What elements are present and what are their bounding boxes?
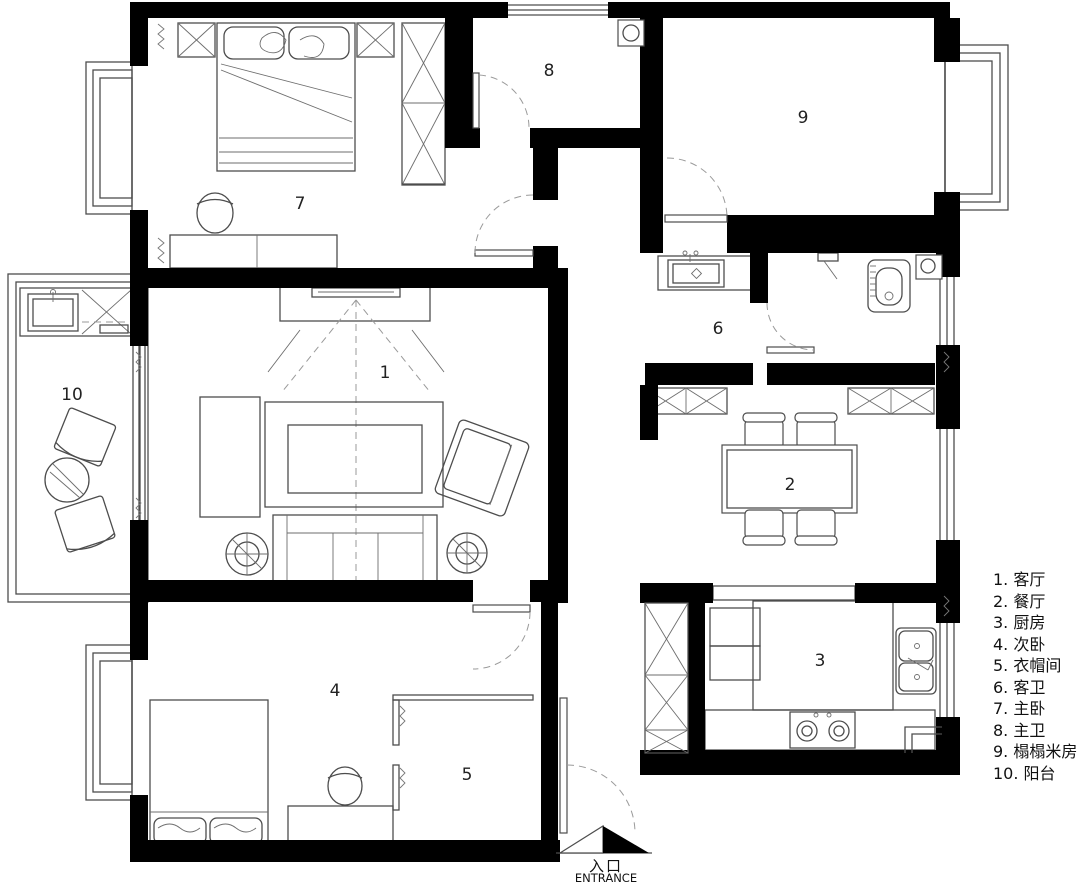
guest-bathroom-furniture <box>658 251 910 312</box>
legend-item: 9. 榻榻米房 <box>993 741 1077 763</box>
balcony-furniture <box>20 288 133 555</box>
bay-window-tatami-room <box>945 45 1008 210</box>
master-bedroom-furniture <box>170 23 445 268</box>
room-legend: 1. 客厅 2. 餐厅 3. 厨房 4. 次卧 5. 衣帽间 6. 客卫 7. … <box>993 569 1077 784</box>
room-number-master-bathroom: 8 <box>544 61 555 81</box>
room-number-kitchen: 3 <box>815 651 826 671</box>
water-heater <box>916 255 942 279</box>
legend-item: 6. 客卫 <box>993 677 1077 699</box>
floor-plan-drawing: 1 2 3 4 5 6 7 8 9 10 <box>0 0 1080 885</box>
entrance-label-en: ENTRANCE <box>556 871 656 885</box>
shoe-cabinet <box>645 603 688 753</box>
legend-item: 3. 厨房 <box>993 612 1077 634</box>
room-number-dining-room: 2 <box>785 475 796 495</box>
room-number-balcony: 10 <box>61 385 83 405</box>
room-number-second-bedroom: 4 <box>330 681 341 701</box>
living-room-furniture <box>200 283 530 586</box>
floor-plan-page: 1 2 3 4 5 6 7 8 9 10 1. 客厅 2. 餐厅 3. 厨房 4… <box>0 0 1080 885</box>
legend-item: 5. 衣帽间 <box>993 655 1077 677</box>
second-bedroom-furniture <box>150 695 533 848</box>
room-number-tatami-room: 9 <box>798 108 809 128</box>
room-number-living-room: 1 <box>380 363 391 383</box>
door-master-bathroom <box>473 73 529 128</box>
bay-window-master-bedroom <box>86 62 132 214</box>
room-number-master-bedroom: 7 <box>295 194 306 214</box>
bay-window-second-bedroom <box>86 645 132 800</box>
legend-item: 7. 主卧 <box>993 698 1077 720</box>
door-second-bedroom <box>473 605 530 669</box>
legend-item: 2. 餐厅 <box>993 591 1077 613</box>
dining-room-furniture <box>645 388 934 545</box>
legend-item: 10. 阳台 <box>993 763 1077 785</box>
door-entrance <box>560 698 635 833</box>
room-number-guest-bathroom: 6 <box>713 319 724 339</box>
legend-item: 8. 主卫 <box>993 720 1077 742</box>
entrance-arrow <box>556 826 652 853</box>
door-tatami-room <box>665 158 727 222</box>
room-number-walk-in-closet: 5 <box>462 765 473 785</box>
door-master-bedroom <box>475 195 533 256</box>
legend-item: 1. 客厅 <box>993 569 1077 591</box>
washing-machine <box>618 20 644 46</box>
door-guest-bathroom <box>767 303 814 353</box>
legend-item: 4. 次卧 <box>993 634 1077 656</box>
